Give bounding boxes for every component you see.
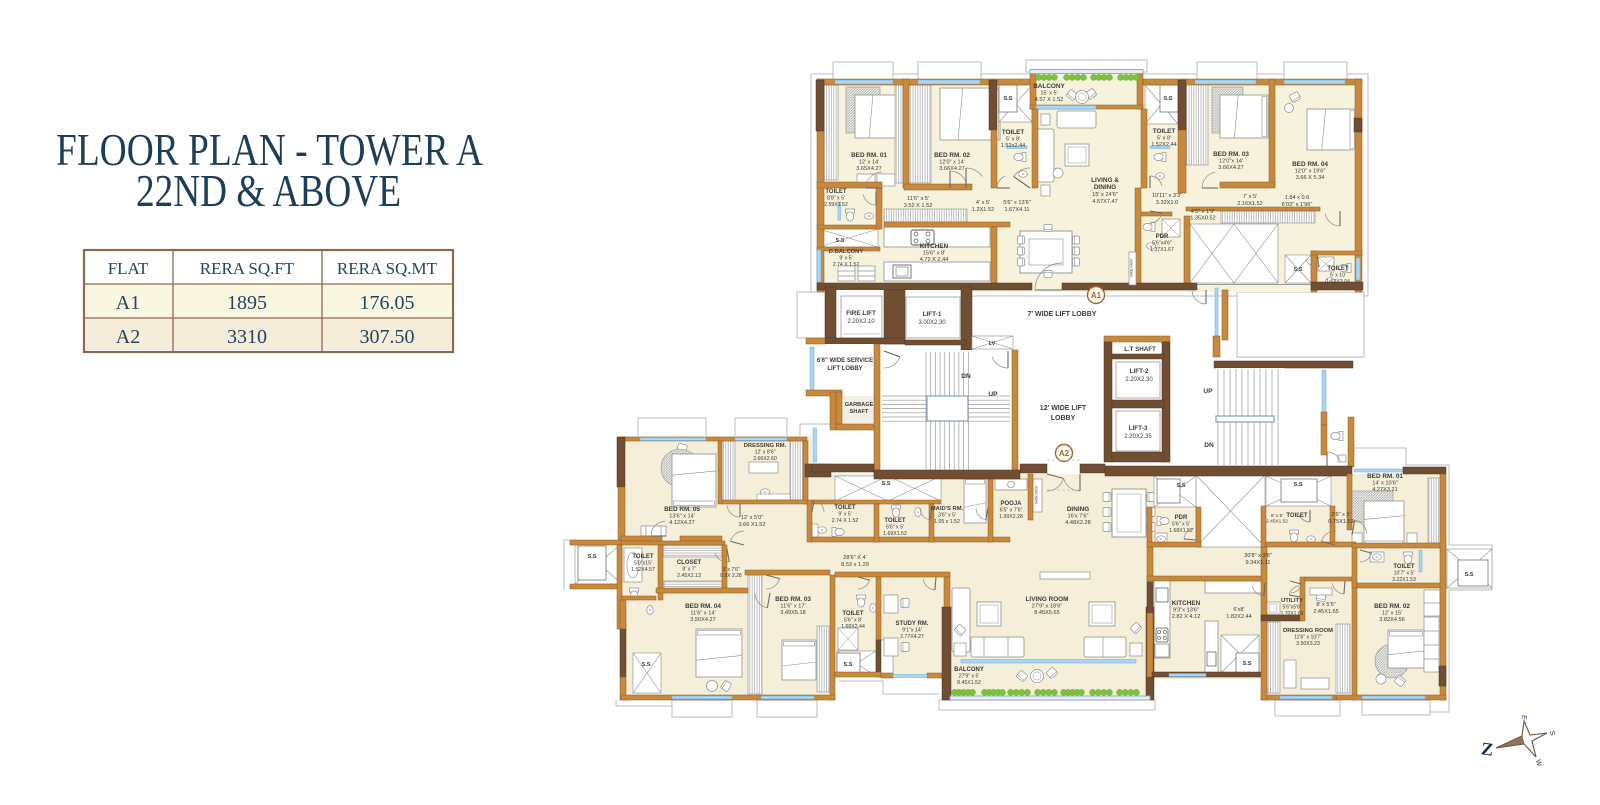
svg-text:8'8" x 5': 8'8" x 5' — [827, 196, 845, 202]
svg-text:2.20X2.35: 2.20X2.35 — [1124, 434, 1152, 440]
svg-text:1.52x2.44: 1.52x2.44 — [1001, 143, 1026, 149]
svg-text:TOILET: TOILET — [1002, 129, 1025, 136]
svg-text:12' x 5'0": 12' x 5'0" — [741, 515, 763, 521]
svg-text:GARBAGE: GARBAGE — [845, 402, 874, 408]
svg-text:LIFT-1: LIFT-1 — [923, 311, 942, 318]
svg-text:UP: UP — [988, 391, 998, 398]
svg-text:3.66 X 5.34: 3.66 X 5.34 — [1296, 175, 1325, 181]
svg-text:TOILET: TOILET — [834, 505, 856, 511]
svg-text:13'6" x 14': 13'6" x 14' — [669, 514, 695, 520]
svg-text:LIFT-2: LIFT-2 — [1130, 368, 1149, 375]
svg-text:9'3"x 13'6": 9'3"x 13'6" — [1173, 608, 1199, 614]
svg-text:RERA SQ.FT: RERA SQ.FT — [200, 259, 295, 278]
svg-text:S.S: S.S — [1003, 96, 1012, 102]
svg-text:3.50X4.27: 3.50X4.27 — [690, 617, 716, 623]
svg-text:1.82X2.44: 1.82X2.44 — [1226, 614, 1252, 620]
svg-text:11'6" x 14': 11'6" x 14' — [690, 611, 715, 617]
svg-text:S.S: S.S — [1293, 482, 1302, 488]
svg-text:3.00X2.30: 3.00X2.30 — [918, 320, 946, 326]
svg-text:S.S: S.S — [1176, 483, 1185, 489]
svg-text:5'6"x4'6": 5'6"x4'6" — [1152, 241, 1172, 247]
svg-text:1.52X2.44: 1.52X2.44 — [1151, 142, 1177, 148]
svg-text:DINING: DINING — [1067, 506, 1089, 513]
svg-text:11'6" x 5': 11'6" x 5' — [907, 196, 929, 202]
svg-text:LV: LV — [989, 341, 996, 347]
svg-text:4.27X3.21: 4.27X3.21 — [1372, 487, 1398, 493]
svg-text:4' x 5': 4' x 5' — [976, 200, 990, 206]
svg-text:3.66X4.27: 3.66X4.27 — [939, 166, 965, 172]
svg-text:A1: A1 — [116, 292, 140, 314]
svg-text:15'6" x 8': 15'6" x 8' — [923, 251, 945, 257]
svg-text:5'6"x5'6": 5'6"x5'6" — [1282, 605, 1301, 611]
svg-text:BED RM. 02: BED RM. 02 — [934, 152, 970, 159]
svg-text:8.45X5.65: 8.45X5.65 — [1034, 610, 1060, 616]
svg-text:2.16X1.52: 2.16X1.52 — [1237, 201, 1263, 207]
svg-text:4.72 X 2.44: 4.72 X 2.44 — [920, 257, 949, 263]
svg-text:9.34X1.11: 9.34X1.11 — [1245, 560, 1270, 566]
svg-text:TOILET: TOILET — [884, 518, 906, 524]
svg-text:PDR: PDR — [1156, 234, 1169, 240]
svg-text:22ND & ABOVE: 22ND & ABOVE — [136, 165, 401, 216]
svg-text:7' WIDE LIFT LOBBY: 7' WIDE LIFT LOBBY — [1028, 311, 1097, 318]
svg-text:3.66X2.60: 3.66X2.60 — [753, 456, 777, 462]
svg-text:S.S: S.S — [587, 554, 596, 560]
svg-text:1.52X3.04: 1.52X3.04 — [1326, 279, 1350, 285]
svg-text:2.45X1.52: 2.45X1.52 — [1266, 519, 1288, 525]
svg-text:L.T SHAFT: L.T SHAFT — [1124, 346, 1156, 353]
svg-text:11'6" x 10'7": 11'6" x 10'7" — [1294, 635, 1322, 641]
svg-text:1895: 1895 — [227, 292, 267, 314]
svg-text:BED RM. 03: BED RM. 03 — [775, 596, 811, 603]
svg-text:8' x 5': 8' x 5' — [1271, 513, 1283, 519]
svg-text:10'7" x 5': 10'7" x 5' — [1394, 571, 1415, 577]
svg-text:4.12X4.27: 4.12X4.27 — [669, 520, 695, 526]
svg-text:UP: UP — [1203, 388, 1213, 395]
svg-text:1.69X1.52: 1.69X1.52 — [883, 531, 907, 537]
svg-text:3.82X4.56: 3.82X4.56 — [1379, 617, 1405, 623]
svg-text:2.20X2.10: 2.20X2.10 — [847, 319, 875, 325]
svg-text:KITCHEN: KITCHEN — [1172, 600, 1201, 607]
svg-text:PDR: PDR — [1175, 515, 1188, 521]
svg-text:6'x8': 6'x8' — [1233, 607, 1244, 613]
svg-text:27'9" x 5': 27'9" x 5' — [959, 674, 980, 680]
svg-text:11'6" x 17': 11'6" x 17' — [780, 604, 805, 610]
svg-text:3'6" x 5': 3'6" x 5' — [938, 513, 956, 519]
svg-text:1.2X1.52: 1.2X1.52 — [972, 207, 994, 213]
svg-text:30'8" x 3'8": 30'8" x 3'8" — [1244, 553, 1272, 559]
svg-text:2'6" x 5': 2'6" x 5' — [1331, 512, 1350, 518]
svg-text:2.45X2.13: 2.45X2.13 — [677, 573, 701, 579]
svg-text:A2: A2 — [1059, 449, 1070, 458]
svg-text:LIFT LOBBY: LIFT LOBBY — [827, 366, 862, 372]
svg-text:3.66 X1.52: 3.66 X1.52 — [738, 522, 765, 528]
svg-text:TOILET: TOILET — [825, 189, 847, 195]
svg-text:D.BALCONY: D.BALCONY — [829, 249, 864, 255]
svg-text:3.66X4.27: 3.66X4.27 — [1218, 165, 1244, 171]
svg-text:307.50: 307.50 — [360, 326, 415, 348]
svg-text:BED RM. 01: BED RM. 01 — [851, 152, 887, 159]
svg-text:7' x 5': 7' x 5' — [1243, 194, 1257, 200]
svg-text:14' x 10'6": 14' x 10'6" — [1372, 481, 1398, 487]
svg-text:5'6" x 13'6": 5'6" x 13'6" — [1003, 200, 1031, 206]
svg-text:4.57 X 1.52: 4.57 X 1.52 — [1035, 97, 1064, 103]
svg-text:3.49X5.18: 3.49X5.18 — [780, 610, 806, 616]
svg-text:1.99X2.28: 1.99X2.28 — [999, 514, 1023, 520]
svg-text:S.S: S.S — [881, 481, 890, 487]
svg-text:8.53 x 1.29: 8.53 x 1.29 — [841, 562, 869, 568]
svg-text:BALCONY: BALCONY — [954, 667, 984, 673]
svg-text:176.05: 176.05 — [360, 292, 415, 314]
svg-text:12'0"x 14': 12'0"x 14' — [1219, 159, 1243, 165]
svg-text:3.22X1.53: 3.22X1.53 — [1392, 577, 1416, 583]
svg-text:BED RM. 02: BED RM. 02 — [1374, 603, 1410, 610]
svg-text:S.S: S.S — [641, 662, 650, 668]
svg-text:1.70X1.65: 1.70X1.65 — [1281, 611, 1304, 617]
svg-text:SHAFT: SHAFT — [850, 409, 869, 415]
svg-text:UTILITY: UTILITY — [1281, 598, 1303, 604]
svg-text:1.68X1.52: 1.68X1.52 — [1169, 528, 1193, 534]
svg-text:4'5" x 1'9": 4'5" x 1'9" — [1191, 209, 1215, 215]
svg-text:8' x 5'5": 8' x 5'5" — [1316, 602, 1335, 608]
svg-text:15' x 5': 15' x 5' — [1040, 91, 1057, 97]
svg-text:0.9X 2.28: 0.9X 2.28 — [720, 573, 742, 579]
svg-text:5'0"x15': 5'0"x15' — [634, 561, 652, 567]
svg-text:BED RM. 05: BED RM. 05 — [664, 506, 700, 513]
svg-text:BED RM. 03: BED RM. 03 — [1213, 151, 1249, 158]
svg-text:8.45X1.52: 8.45X1.52 — [957, 680, 981, 686]
svg-text:BALCONY: BALCONY — [1033, 83, 1065, 90]
svg-text:RERA SQ.MT: RERA SQ.MT — [337, 259, 438, 278]
svg-text:SHOE RACK: SHOE RACK — [1130, 258, 1134, 278]
svg-text:1.37X1.67: 1.37X1.67 — [1150, 247, 1174, 253]
svg-text:S.S: S.S — [835, 238, 844, 244]
svg-text:1.67X4.11: 1.67X4.11 — [1004, 207, 1029, 213]
svg-text:12' x 15': 12' x 15' — [1382, 611, 1403, 617]
svg-text:5'6" x 8': 5'6" x 8' — [844, 618, 862, 624]
svg-text:STUDY RM.: STUDY RM. — [896, 621, 929, 627]
svg-text:TOILET: TOILET — [1286, 513, 1308, 519]
svg-text:S.S: S.S — [1464, 572, 1473, 578]
svg-text:3.50X3.23: 3.50X3.23 — [1296, 641, 1320, 647]
svg-text:POOJA: POOJA — [1000, 501, 1022, 507]
svg-text:TOILET: TOILET — [1393, 564, 1415, 570]
svg-text:1.52X4.57: 1.52X4.57 — [631, 567, 655, 573]
svg-text:12'0" x 19'6": 12'0" x 19'6" — [1295, 169, 1326, 175]
svg-text:TOILET: TOILET — [1327, 266, 1349, 272]
svg-text:2.74 X 1.52: 2.74 X 1.52 — [832, 518, 859, 524]
svg-text:2.74 X 1.52: 2.74 X 1.52 — [833, 262, 860, 268]
svg-text:10'11" x 3'3": 10'11" x 3'3" — [1152, 193, 1182, 199]
svg-text:3.52 X 1.52: 3.52 X 1.52 — [904, 203, 933, 209]
svg-text:9' x 5': 9' x 5' — [838, 512, 851, 518]
svg-text:A2: A2 — [116, 326, 140, 348]
svg-text:DN: DN — [1204, 442, 1214, 449]
svg-text:BED RM. 01: BED RM. 01 — [1367, 473, 1403, 480]
svg-text:2.77X4.27: 2.77X4.27 — [900, 634, 924, 640]
svg-text:S.S: S.S — [1242, 661, 1251, 667]
svg-text:FIRE LIFT: FIRE LIFT — [846, 310, 876, 317]
svg-text:0.75X1.52: 0.75X1.52 — [1328, 519, 1354, 525]
svg-text:6'6" WIDE SERVICE: 6'6" WIDE SERVICE — [817, 358, 873, 364]
svg-text:3.32X1.0: 3.32X1.0 — [1156, 200, 1178, 206]
svg-text:A1: A1 — [1091, 291, 1102, 300]
svg-text:TOILET: TOILET — [632, 554, 654, 560]
svg-text:5' x 8': 5' x 8' — [1006, 137, 1020, 143]
svg-text:9'1"x 14': 9'1"x 14' — [902, 628, 921, 634]
svg-text:28'6" X 4': 28'6" X 4' — [843, 555, 866, 561]
svg-text:LIVING ROOM: LIVING ROOM — [1026, 596, 1069, 603]
svg-text:27'9" x 18'6": 27'9" x 18'6" — [1032, 604, 1063, 610]
svg-text:S.S: S.S — [843, 662, 852, 668]
svg-text:3310: 3310 — [227, 326, 267, 348]
svg-text:2.59X1.52: 2.59X1.52 — [824, 202, 848, 208]
svg-text:S.S: S.S — [1293, 267, 1302, 273]
svg-text:16'x 7'6": 16'x 7'6" — [1068, 514, 1089, 520]
svg-text:12' x 8'6": 12' x 8'6" — [755, 450, 776, 456]
svg-text:LOBBY: LOBBY — [1051, 415, 1076, 422]
svg-text:12'0" x 14': 12'0" x 14' — [939, 160, 965, 166]
svg-text:LIVING &: LIVING & — [1091, 177, 1119, 184]
svg-text:S.S: S.S — [1163, 96, 1172, 102]
svg-text:TOILET: TOILET — [842, 611, 864, 617]
svg-text:4.48X2.28: 4.48X2.28 — [1065, 520, 1091, 526]
svg-text:12' WIDE LIFT: 12' WIDE LIFT — [1040, 405, 1087, 412]
svg-text:DRESSING ROOM: DRESSING ROOM — [1283, 628, 1333, 634]
svg-text:9' x 5': 9' x 5' — [839, 256, 852, 262]
svg-text:1.68X2.44: 1.68X2.44 — [841, 624, 865, 630]
svg-text:DINING: DINING — [1094, 184, 1116, 191]
svg-text:DRESSING RM.: DRESSING RM. — [744, 443, 787, 449]
svg-text:5' x 10': 5' x 10' — [1330, 273, 1346, 279]
svg-text:LIFT-3: LIFT-3 — [1129, 425, 1148, 432]
svg-text:1.84 x 0.6: 1.84 x 0.6 — [1285, 195, 1310, 201]
svg-text:5' x 8': 5' x 8' — [1157, 136, 1171, 142]
svg-text:1.05 x 1.52: 1.05 x 1.52 — [934, 519, 960, 525]
svg-text:MAID'S RM.: MAID'S RM. — [931, 506, 964, 512]
svg-text:BED RM. 04: BED RM. 04 — [1292, 161, 1328, 168]
svg-text:5'6" x 5': 5'6" x 5' — [886, 525, 904, 531]
svg-text:FLAT: FLAT — [108, 259, 149, 278]
svg-text:2.20X2.30: 2.20X2.30 — [1125, 377, 1153, 383]
svg-text:6'03" x 1'96": 6'03" x 1'96" — [1282, 202, 1313, 208]
svg-text:12' x 14': 12' x 14' — [859, 160, 880, 166]
svg-text:2.45X1.65: 2.45X1.65 — [1313, 609, 1339, 615]
svg-text:2.82 X 4.12: 2.82 X 4.12 — [1172, 614, 1201, 620]
svg-text:5'6" x 5': 5'6" x 5' — [1172, 522, 1190, 528]
svg-text:BED RM. 04: BED RM. 04 — [685, 603, 721, 610]
svg-text:DN: DN — [961, 373, 971, 380]
svg-text:3.65X4.27: 3.65X4.27 — [856, 166, 882, 172]
svg-text:SHOE RACK: SHOE RACK — [1035, 485, 1039, 505]
svg-text:CLOSET: CLOSET — [677, 560, 702, 566]
svg-text:KITCHEN: KITCHEN — [920, 243, 949, 250]
svg-text:TOILET: TOILET — [1153, 128, 1176, 135]
svg-text:15' x 24'6": 15' x 24'6" — [1092, 192, 1118, 198]
svg-text:6'5" x 7'6": 6'5" x 7'6" — [1000, 508, 1023, 514]
svg-text:4.57X7.47: 4.57X7.47 — [1092, 199, 1118, 205]
svg-text:1.35X0.52: 1.35X0.52 — [1190, 216, 1216, 222]
svg-text:8' x 7': 8' x 7' — [682, 567, 695, 573]
